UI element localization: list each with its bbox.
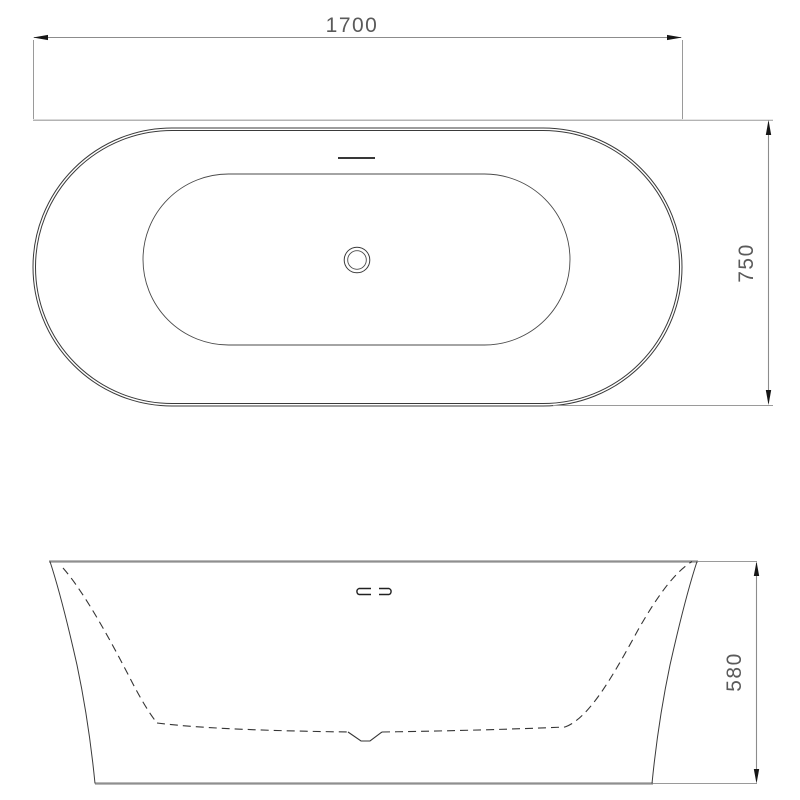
arrowhead-up-icon: [766, 120, 771, 135]
front-view: [49, 562, 757, 784]
arrowhead-down-icon: [766, 390, 771, 405]
front-left-wall: [50, 562, 95, 784]
technical-drawing: 1700 750: [0, 0, 800, 800]
drain-inner-circle: [348, 251, 367, 270]
height-dimension: 580: [723, 562, 759, 784]
depth-dimension: 750: [553, 120, 773, 406]
depth-dimension-label: 750: [735, 243, 758, 283]
hidden-drain-recess: [348, 732, 382, 741]
arrowhead-down-icon: [754, 769, 759, 784]
top-view: [33, 120, 683, 406]
overflow-slot-right: [379, 589, 391, 595]
hidden-bottom-right: [382, 727, 565, 732]
front-right-wall: [652, 562, 697, 784]
front-overflow-icon: [357, 589, 391, 595]
arrowhead-right-icon: [667, 35, 682, 40]
drawing-svg: 1700 750: [0, 0, 800, 800]
arrowhead-left-icon: [33, 35, 48, 40]
hidden-left-interior: [63, 568, 157, 723]
overflow-slot-left: [357, 589, 371, 595]
arrowhead-up-icon: [754, 562, 759, 577]
height-dimension-label: 580: [723, 652, 746, 692]
tub-basin-outline: [143, 174, 570, 345]
hidden-bottom-left: [157, 723, 348, 732]
width-dimension-label: 1700: [326, 14, 379, 37]
tub-inner-rim: [36, 131, 680, 404]
tub-outer-rim: [33, 128, 682, 406]
drain-icon: [344, 247, 370, 273]
hidden-right-interior: [565, 562, 692, 728]
width-dimension: 1700: [33, 14, 683, 119]
